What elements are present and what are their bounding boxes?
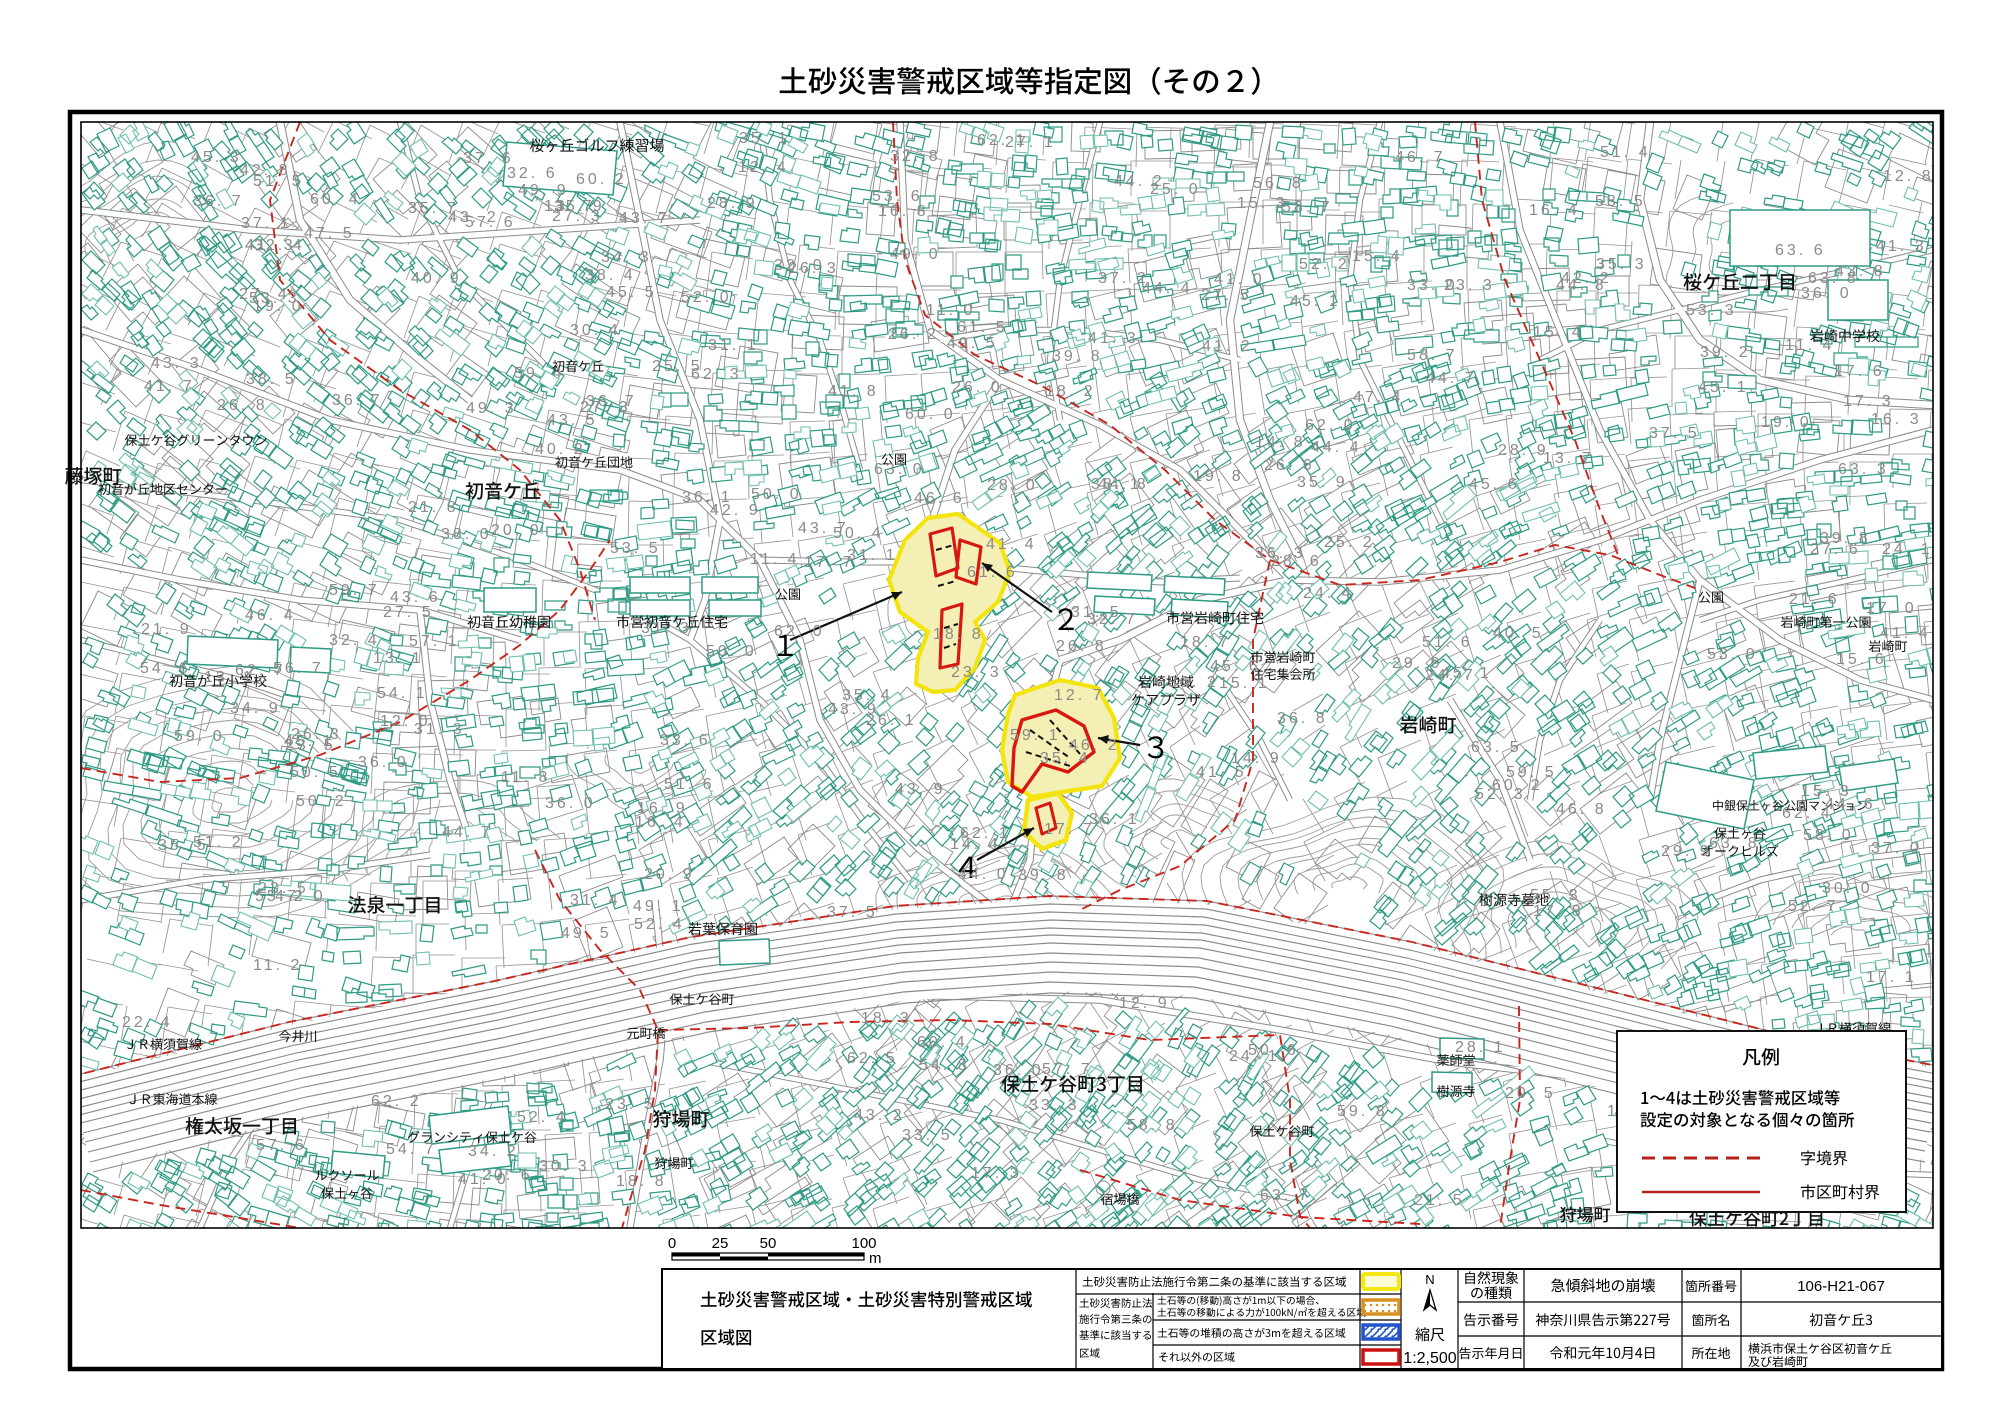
svg-text:35. 9: 35. 9	[1297, 474, 1348, 491]
svg-text:49. 0: 49. 0	[890, 246, 941, 263]
svg-text:20. 6: 20. 6	[482, 1167, 533, 1184]
svg-text:53. 5: 53. 5	[610, 540, 661, 557]
svg-text:56. 8: 56. 8	[1253, 175, 1304, 192]
svg-text:26. 3: 26. 3	[788, 260, 839, 277]
svg-text:23. 5: 23. 5	[605, 1096, 656, 1113]
svg-text:36. 0: 36. 0	[545, 795, 596, 812]
svg-text:60. 0: 60. 0	[905, 406, 956, 423]
svg-text:40. 5: 40. 5	[1493, 625, 1544, 642]
svg-text:43. 7: 43. 7	[619, 210, 670, 227]
svg-text:54. 8: 54. 8	[919, 1057, 970, 1074]
svg-text:59. 5: 59. 5	[1506, 764, 1557, 781]
svg-text:16. 4: 16. 4	[1529, 202, 1580, 219]
svg-text:21. 9: 21. 9	[141, 621, 192, 638]
svg-text:27. 6: 27. 6	[1810, 541, 1861, 558]
svg-text:46. 4: 46. 4	[245, 607, 296, 624]
svg-text:18. 3: 18. 3	[861, 1010, 912, 1027]
svg-text:54. 7: 54. 7	[386, 1141, 437, 1158]
svg-text:37. 5: 37. 5	[1649, 425, 1700, 442]
svg-text:57. 6: 57. 6	[256, 1137, 307, 1154]
svg-text:35. 4: 35. 4	[1040, 750, 1091, 767]
svg-text:41. 7: 41. 7	[144, 378, 195, 395]
svg-text:17. 3: 17. 3	[1843, 393, 1894, 410]
svg-text:36. 0: 36. 0	[1801, 285, 1852, 302]
svg-text:37. 1: 37. 1	[241, 215, 292, 232]
svg-text:45. 3: 45. 3	[191, 149, 242, 166]
svg-text:21. 6: 21. 6	[1789, 591, 1840, 608]
svg-text:63. 0: 63. 0	[874, 461, 925, 478]
svg-text:59. 1: 59. 1	[1010, 727, 1061, 744]
svg-text:39. 2: 39. 2	[1700, 344, 1751, 361]
svg-text:28. 0: 28. 0	[987, 477, 1038, 494]
svg-text:25. 2: 25. 2	[1324, 534, 1375, 551]
svg-text:56. 7: 56. 7	[273, 660, 324, 677]
svg-text:31. 3: 31. 3	[414, 721, 465, 738]
svg-text:53. 0: 53. 0	[1707, 646, 1758, 663]
svg-text:27. 5: 27. 5	[383, 604, 434, 621]
svg-text:58. 5: 58. 5	[1595, 193, 1646, 210]
svg-text:26. 2: 26. 2	[888, 326, 939, 343]
svg-text:18. 2: 18. 2	[1045, 383, 1096, 400]
svg-text:57. 7: 57. 7	[1042, 1061, 1093, 1078]
svg-text:15. 4: 15. 4	[1533, 324, 1584, 341]
svg-text:35. 7: 35. 7	[408, 200, 459, 217]
svg-text:30. 4: 30. 4	[570, 322, 621, 339]
svg-text:40. 9: 40. 9	[411, 270, 462, 287]
svg-text:46. 8: 46. 8	[1556, 801, 1607, 818]
svg-text:14. 8: 14. 8	[1255, 434, 1306, 451]
svg-text:60. 4: 60. 4	[310, 191, 361, 208]
svg-text:49. 1: 49. 1	[633, 898, 684, 915]
svg-text:45. 5: 45. 5	[606, 284, 657, 301]
svg-text:55. 2: 55. 2	[255, 888, 306, 905]
svg-text:34. 2: 34. 2	[468, 1143, 519, 1160]
svg-text:26. 0: 26. 0	[952, 379, 1003, 396]
svg-text:41. 5: 41. 5	[1196, 764, 1247, 781]
svg-text:16. 3: 16. 3	[1871, 411, 1922, 428]
svg-text:63. 6: 63. 6	[1775, 242, 1826, 259]
svg-text:45. 1: 45. 1	[1290, 293, 1341, 310]
svg-text:18. 8: 18. 8	[933, 626, 984, 643]
svg-text:41. 0: 41. 0	[1214, 271, 1265, 288]
svg-text:25: 25	[712, 1235, 729, 1252]
svg-text:41. 2: 41. 2	[1202, 338, 1253, 355]
svg-text:52. 4: 52. 4	[517, 1109, 568, 1126]
svg-text:40. 2: 40. 2	[535, 441, 586, 458]
svg-text:38. 0: 38. 0	[441, 526, 492, 543]
svg-text:31. 1: 31. 1	[847, 547, 898, 564]
svg-text:46. 7: 46. 7	[1395, 149, 1446, 166]
svg-text:12. 7: 12. 7	[1054, 687, 1105, 704]
svg-text:27. 4: 27. 4	[239, 286, 290, 303]
svg-text:60. 4: 60. 4	[917, 1034, 968, 1051]
svg-text:45. 6: 45. 6	[1469, 476, 1520, 493]
svg-text:33. 3: 33. 3	[1029, 1097, 1080, 1114]
svg-text:12. 8: 12. 8	[1883, 168, 1934, 185]
svg-text:20. 0: 20. 0	[491, 522, 542, 539]
svg-text:52. 3: 52. 3	[1475, 786, 1526, 803]
svg-text:13. 7: 13. 7	[1543, 450, 1594, 467]
svg-text:55. 3: 55. 3	[1530, 887, 1581, 904]
svg-text:62. 1: 62. 1	[960, 825, 1011, 842]
svg-text:60. 2: 60. 2	[576, 171, 627, 188]
svg-text:31. 1: 31. 1	[708, 337, 759, 354]
svg-text:52. 0: 52. 0	[681, 289, 732, 306]
svg-text:11. 8: 11. 8	[501, 769, 550, 786]
svg-text:17. 3: 17. 3	[971, 1165, 1022, 1182]
svg-text:41. 3: 41. 3	[1876, 238, 1927, 255]
svg-text:57. 1: 57. 1	[409, 633, 460, 650]
svg-text:62. 1: 62. 1	[977, 132, 1028, 149]
svg-text:43. 7: 43. 7	[798, 520, 849, 537]
svg-text:32. 8: 32. 8	[890, 148, 941, 165]
svg-text:38. 1: 38. 1	[1091, 476, 1142, 493]
svg-text:33. 0: 33. 0	[1407, 277, 1458, 294]
svg-text:59. 0: 59. 0	[174, 728, 225, 745]
svg-text:44. 7: 44. 7	[442, 824, 493, 841]
svg-text:45. 6: 45. 6	[1210, 658, 1261, 675]
svg-text:47. 5: 47. 5	[304, 225, 355, 242]
svg-text:22. 4: 22. 4	[122, 1014, 173, 1031]
svg-text:37. 5: 37. 5	[827, 904, 878, 921]
svg-text:38. 5: 38. 5	[246, 371, 297, 388]
svg-text:35. 1: 35. 1	[739, 130, 790, 147]
svg-text:63. 7: 63. 7	[1260, 1187, 1311, 1204]
svg-text:37. 2: 37. 2	[1098, 270, 1149, 287]
svg-text:36. 8: 36. 8	[1277, 710, 1328, 727]
svg-text:17. 0: 17. 0	[1866, 600, 1917, 617]
svg-text:0: 0	[668, 1235, 676, 1252]
svg-text:27. 3: 27. 3	[580, 399, 631, 416]
svg-text:59. 8: 59. 8	[1337, 1103, 1388, 1120]
svg-text:39. 8: 39. 8	[1018, 867, 1069, 884]
svg-text:23. 3: 23. 3	[951, 664, 1002, 681]
svg-text:37. 0: 37. 0	[1871, 840, 1922, 857]
svg-text:32. 4: 32. 4	[329, 632, 380, 649]
svg-text:45. 1: 45. 1	[1698, 379, 1749, 396]
svg-text:31. 5: 31. 5	[1071, 604, 1122, 621]
svg-text:41. 3: 41. 3	[1088, 330, 1139, 347]
svg-text:28. 9: 28. 9	[1498, 442, 1549, 459]
svg-text:50: 50	[760, 1235, 777, 1252]
svg-text:15. 3: 15. 3	[1237, 195, 1288, 212]
svg-text:36. 0: 36. 0	[358, 754, 409, 771]
svg-text:15. 6: 15. 6	[1836, 651, 1887, 668]
svg-text:63. 8: 63. 8	[1709, 835, 1760, 852]
svg-text:39. 8: 39. 8	[1052, 348, 1103, 365]
svg-text:33. 6: 33. 6	[660, 732, 711, 749]
svg-text:24. 7: 24. 7	[1425, 667, 1476, 684]
svg-text:28. 9: 28. 9	[707, 195, 758, 212]
svg-text:58. 7: 58. 7	[1282, 199, 1333, 216]
svg-text:42. 8: 42. 8	[240, 162, 291, 179]
svg-text:38. 4: 38. 4	[585, 267, 636, 284]
svg-text:52. 4: 52. 4	[634, 916, 685, 933]
svg-text:13. 1: 13. 1	[373, 650, 424, 667]
svg-text:50. 0: 50. 0	[706, 643, 757, 660]
svg-text:44. 4: 44. 4	[1311, 439, 1362, 456]
svg-text:21. 5: 21. 5	[1414, 1192, 1465, 1209]
svg-text:19. 0: 19. 0	[1761, 414, 1812, 431]
svg-text:36. 2: 36. 2	[1168, 674, 1219, 691]
svg-text:41. 8: 41. 8	[828, 383, 879, 400]
svg-text:52. 2: 52. 2	[1299, 256, 1350, 273]
svg-text:58. 0: 58. 0	[1803, 827, 1854, 844]
svg-text:44. 2: 44. 2	[1114, 173, 1165, 190]
svg-text:47. 4: 47. 4	[1353, 389, 1404, 406]
svg-text:16. 8: 16. 8	[878, 203, 929, 220]
svg-text:28. 1: 28. 1	[1455, 1039, 1506, 1056]
svg-text:63. 5: 63. 5	[1471, 739, 1522, 756]
svg-text:37. 6: 37. 6	[463, 150, 514, 167]
svg-text:50. 0: 50. 0	[751, 486, 802, 503]
svg-text:59. 4: 59. 4	[514, 365, 565, 382]
svg-text:62. 5: 62. 5	[847, 1050, 898, 1067]
svg-text:52. 7: 52. 7	[1788, 898, 1839, 915]
svg-text:49. 9: 49. 9	[518, 182, 569, 199]
svg-text:20. 9: 20. 9	[644, 866, 695, 883]
svg-text:20. 5: 20. 5	[1505, 1085, 1556, 1102]
svg-text:62. 0: 62. 0	[1305, 417, 1356, 434]
svg-text:12. 4: 12. 4	[738, 159, 789, 176]
svg-text:17. 7: 17. 7	[1044, 821, 1095, 838]
svg-text:54. 6: 54. 6	[140, 660, 191, 677]
svg-text:49. 5: 49. 5	[561, 925, 612, 942]
svg-text:35. 4: 35. 4	[842, 687, 893, 704]
svg-text:46. 6: 46. 6	[914, 490, 965, 507]
svg-text:36. 1: 36. 1	[1089, 811, 1140, 828]
svg-text:11. 2: 11. 2	[253, 957, 302, 974]
svg-text:44. 7: 44. 7	[1426, 370, 1477, 387]
svg-text:36. 3: 36. 3	[1255, 545, 1306, 562]
svg-text:11. 4: 11. 4	[1785, 337, 1834, 354]
svg-text:17. 8: 17. 8	[1533, 903, 1584, 920]
svg-text:51. 6: 51. 6	[1422, 634, 1473, 651]
svg-text:58. 8: 58. 8	[1127, 1117, 1178, 1134]
svg-text:26. 1: 26. 1	[866, 712, 917, 729]
svg-text:49. 3: 49. 3	[466, 400, 517, 417]
svg-text:49. 5: 49. 5	[947, 335, 998, 352]
svg-text:44. 4: 44. 4	[1142, 280, 1193, 297]
svg-text:34. 3: 34. 3	[601, 249, 652, 266]
svg-text:30. 3: 30. 3	[539, 1158, 590, 1175]
svg-text:106-H21-067: 106-H21-067	[1797, 1278, 1885, 1295]
svg-text:16. 9: 16. 9	[637, 800, 688, 817]
svg-text:27. 5: 27. 5	[1201, 287, 1252, 304]
svg-text:31. 4: 31. 4	[570, 892, 621, 909]
svg-text:50. 2: 50. 2	[296, 793, 347, 810]
svg-text:21. 8: 21. 8	[408, 499, 459, 516]
svg-text:33. 5: 33. 5	[902, 1127, 953, 1144]
svg-text:51. 6: 51. 6	[664, 776, 715, 793]
svg-text:43. 9: 43. 9	[895, 781, 946, 798]
svg-text:50. 5: 50. 5	[290, 764, 341, 781]
svg-text:24. 4: 24. 4	[1303, 585, 1354, 602]
svg-text:43. 2: 43. 2	[854, 1107, 905, 1124]
svg-text:29. 9: 29. 9	[1661, 843, 1712, 860]
svg-text:30. 0: 30. 0	[1822, 880, 1873, 897]
svg-text:41. 4: 41. 4	[986, 536, 1037, 553]
svg-text:34. 9: 34. 9	[230, 700, 281, 717]
svg-text:13. 7: 13. 7	[544, 198, 595, 215]
svg-text:36. 7: 36. 7	[332, 392, 383, 409]
svg-text:1:2,500: 1:2,500	[1403, 1350, 1456, 1367]
svg-text:62. 0: 62. 0	[774, 623, 825, 640]
svg-text:32. 6: 32. 6	[507, 165, 558, 182]
svg-text:63. 3: 63. 3	[1838, 461, 1889, 478]
svg-text:42. 2: 42. 2	[1561, 270, 1612, 287]
svg-text:62. 2: 62. 2	[371, 1093, 422, 1110]
svg-text:43. 8: 43. 8	[1835, 263, 1886, 280]
svg-text:19. 8: 19. 8	[1193, 468, 1244, 485]
svg-text:26. 8: 26. 8	[217, 397, 268, 414]
svg-text:59. 7: 59. 7	[329, 582, 380, 599]
svg-text:17. 6: 17. 6	[1834, 363, 1885, 380]
svg-text:m: m	[869, 1250, 882, 1267]
svg-text:44. 0: 44. 0	[958, 866, 1009, 883]
svg-text:53. 6: 53. 6	[872, 188, 923, 205]
svg-text:15. 4: 15. 4	[1352, 248, 1403, 265]
svg-text:61. 6: 61. 6	[967, 564, 1018, 581]
svg-text:41. 4: 41. 4	[1880, 625, 1931, 642]
svg-text:11. 4: 11. 4	[750, 551, 799, 568]
svg-text:N: N	[1425, 1272, 1434, 1287]
svg-text:17. 1: 17. 1	[1866, 969, 1917, 986]
svg-text:31. 3: 31. 3	[641, 620, 692, 637]
svg-text:50. 6: 50. 6	[1248, 1042, 1299, 1059]
svg-text:26. 8: 26. 8	[1056, 638, 1107, 655]
svg-text:41. 3: 41. 3	[245, 237, 296, 254]
svg-text:25. 5: 25. 5	[652, 358, 703, 375]
svg-text:15. 1: 15. 1	[1219, 675, 1270, 692]
svg-text:44. 6: 44. 6	[1825, 796, 1876, 813]
svg-text:36. 0: 36. 0	[993, 1062, 1044, 1079]
svg-text:36. 1: 36. 1	[682, 489, 733, 506]
svg-text:36. 7: 36. 7	[193, 193, 244, 210]
svg-text:24. 1: 24. 1	[1882, 541, 1933, 558]
svg-text:61. 5: 61. 5	[957, 319, 1008, 336]
svg-text:35. 5: 35. 5	[158, 837, 209, 854]
svg-text:51. 4: 51. 4	[1600, 144, 1651, 161]
svg-text:26. 3: 26. 3	[291, 726, 342, 743]
svg-text:26. 6: 26. 6	[1264, 457, 1315, 474]
svg-text:11. 0: 11. 0	[926, 302, 975, 319]
svg-text:54. 1: 54. 1	[377, 685, 428, 702]
svg-text:12. 9: 12. 9	[1119, 995, 1170, 1012]
svg-text:18. 7: 18. 7	[1180, 634, 1231, 651]
svg-text:18. 8: 18. 8	[616, 1173, 667, 1190]
svg-text:53. 3: 53. 3	[1686, 302, 1737, 319]
svg-text:43. 3: 43. 3	[151, 355, 202, 372]
svg-text:58. 7: 58. 7	[1407, 347, 1458, 364]
